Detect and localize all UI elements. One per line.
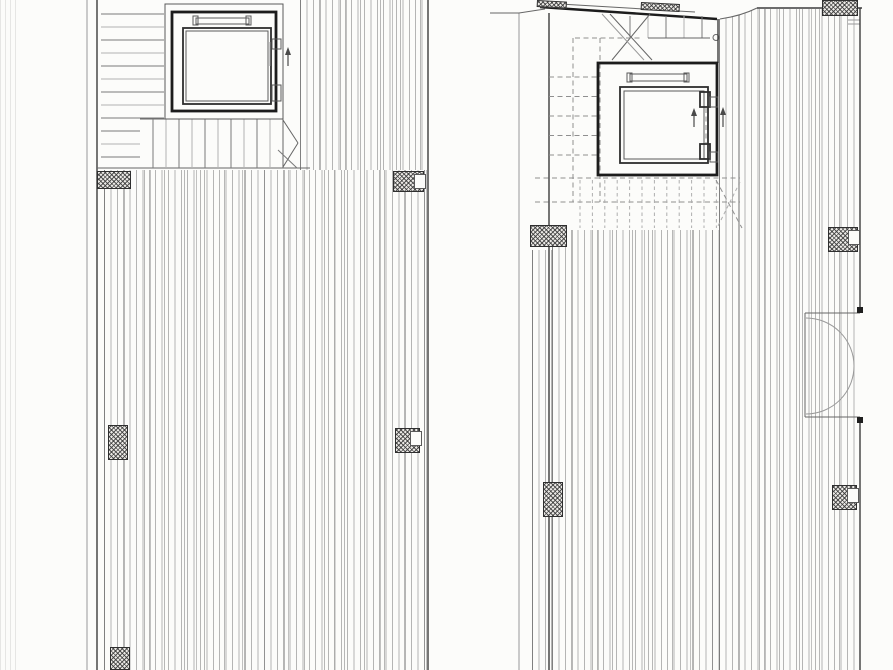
- wall-pier: [97, 171, 131, 189]
- wall-pier: [110, 647, 130, 670]
- wall-pier: [641, 2, 680, 12]
- wall-pier: [395, 428, 420, 453]
- pier-notch: [848, 230, 860, 245]
- wall-pier: [822, 0, 858, 16]
- wall-pier: [108, 425, 128, 460]
- wall-pier: [832, 485, 857, 510]
- wall-pier: [543, 482, 563, 517]
- pier-notch: [410, 431, 422, 446]
- wall-pier: [537, 0, 567, 9]
- floorplan-canvas: [0, 0, 893, 670]
- pier-notch: [414, 174, 426, 189]
- wall-pier: [393, 171, 424, 192]
- pier-notch: [847, 488, 859, 503]
- wall-pier: [530, 225, 567, 247]
- wall-pier: [828, 227, 858, 252]
- wall-pier-layer: [0, 0, 893, 670]
